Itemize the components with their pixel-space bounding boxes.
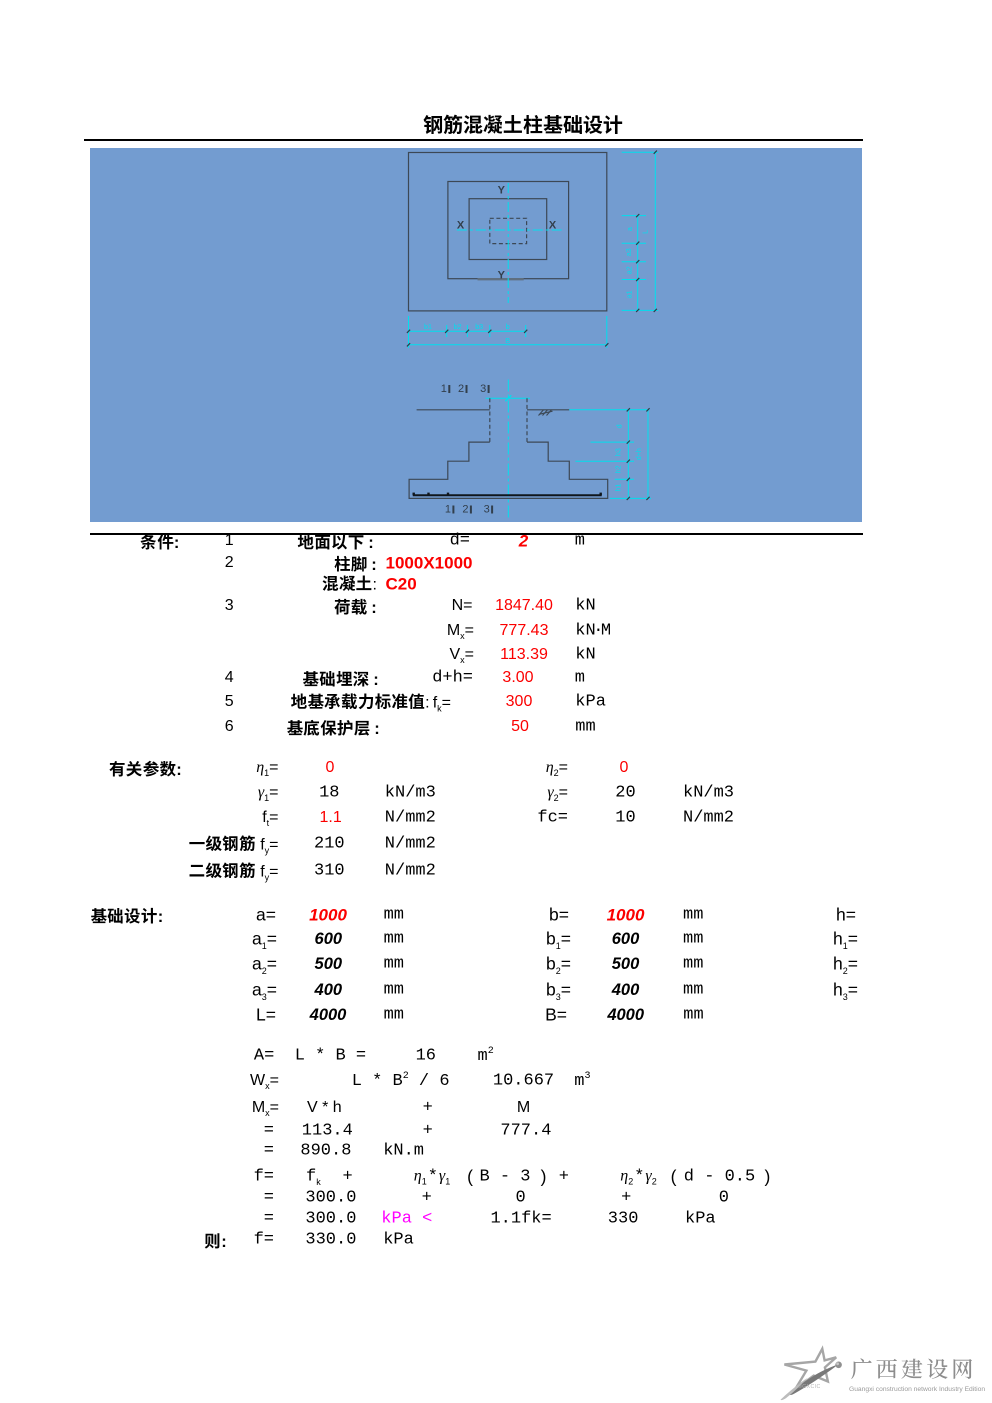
svg-text:d+h: d+h (634, 448, 643, 460)
svg-text:a3: a3 (624, 248, 633, 256)
svg-text:Y: Y (498, 269, 506, 281)
svg-text:b: b (506, 322, 510, 331)
svg-text:B: B (505, 336, 510, 345)
svg-text:a2: a2 (624, 266, 633, 274)
svg-text:2: 2 (462, 504, 468, 516)
svg-text:Guangxi construction network I: Guangxi construction network Industry Ed… (849, 1386, 985, 1393)
svg-text:X: X (457, 220, 465, 232)
svg-text:h3: h3 (614, 448, 623, 456)
svg-text:b1: b1 (424, 322, 432, 331)
svg-text:a1: a1 (624, 290, 633, 298)
svg-text:1: 1 (441, 383, 447, 395)
svg-text:h1: h1 (614, 484, 623, 492)
svg-text:2: 2 (458, 383, 464, 395)
svg-text:®GXCIC: ®GXCIC (798, 1383, 821, 1390)
svg-text:1: 1 (445, 504, 451, 516)
svg-text:X: X (549, 220, 557, 232)
svg-text:a: a (625, 227, 634, 231)
svg-text:b3: b3 (475, 322, 483, 331)
svg-text:h2: h2 (614, 465, 623, 473)
svg-text:3: 3 (484, 504, 490, 516)
svg-text:d: d (614, 424, 623, 428)
svg-text:b2: b2 (454, 322, 462, 331)
svg-text:L: L (641, 230, 650, 234)
svg-text:Y: Y (498, 185, 506, 197)
svg-text:广西建设网: 广西建设网 (851, 1353, 977, 1384)
svg-text:3: 3 (480, 383, 486, 395)
